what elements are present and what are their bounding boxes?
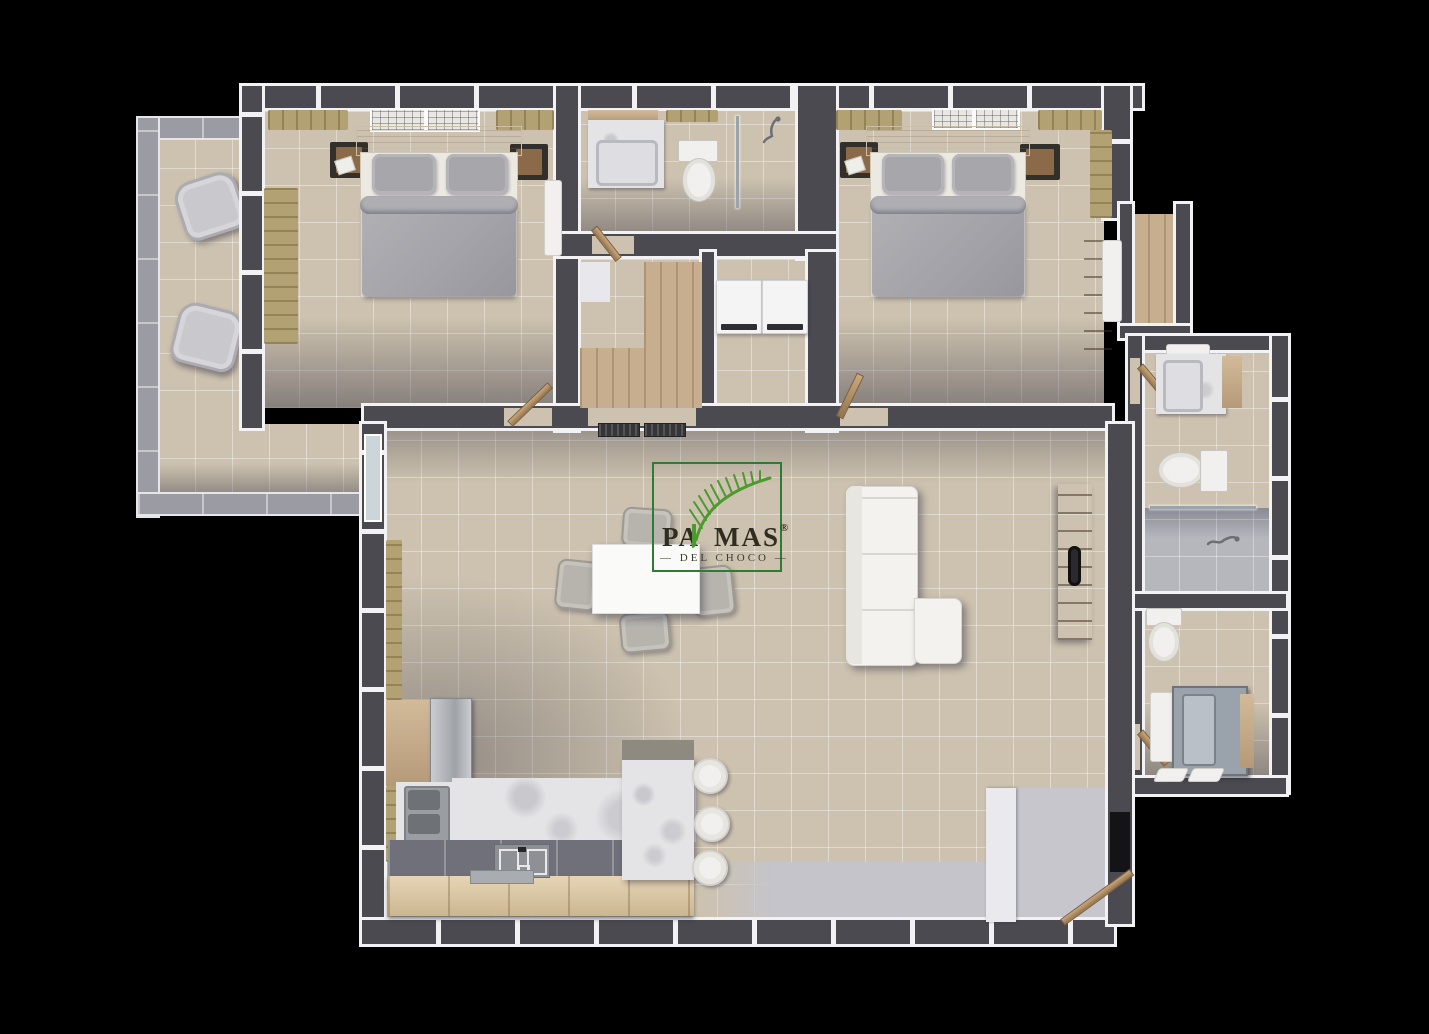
washer [716,280,762,334]
floor-mat [644,423,686,437]
duvet-fold [870,196,1026,214]
brand-name: PAMAS® [662,522,790,553]
balcony-rail-left [138,118,158,516]
floor-mat [598,423,640,437]
sink-basin [596,140,658,186]
wall-ac-unit [1102,240,1122,322]
registered-mark: ® [780,522,790,534]
sink-basin [408,790,440,810]
window-curtain [268,110,348,130]
entry-partition-wall [986,788,1016,922]
small-closet-floor [1132,214,1176,328]
toilet-bowl [1158,452,1204,488]
bar-stool [694,806,730,842]
balcony-rail-bottom [138,494,370,514]
leaf-stem [692,524,696,548]
kitchen-island [622,758,694,880]
shower-glass [736,116,739,208]
toilet [1200,450,1228,492]
shower-head-icon [758,116,784,150]
kitchen-counter-front [388,876,694,916]
balcony-glass-door [364,434,382,522]
shower-frame [1240,694,1254,768]
wall-bath-bed2 [798,86,836,258]
floor-plan: PAMAS® — DEL CHOCO — [0,0,1429,1034]
kitchen-island-end [622,740,694,760]
wall-closet-laundry [702,252,714,428]
bath-mat [1187,768,1225,782]
bar-stool [692,850,728,886]
wall-ac-unit [544,180,562,256]
shower-cabin-door [1182,694,1216,766]
ensuite-door-opening [1130,358,1140,404]
balcony-floor-lower [158,424,370,496]
window-curtain [1038,110,1102,130]
bed-duvet [362,202,516,296]
towel-shelf [666,110,718,122]
shower-head-icon [1206,526,1240,552]
wall-wing-mid [1128,594,1286,608]
stove-vent [470,870,534,884]
pillow [372,154,436,194]
sofa-chaise [914,598,962,664]
entry-door-opening [1110,812,1130,872]
bed-duvet [872,202,1024,296]
wall-wing-right [1272,336,1288,792]
wall-small-closet-right [1176,204,1190,338]
wall-top-outer [242,86,1142,108]
shower-glass [1150,506,1256,509]
window-curtain-side [1090,130,1112,218]
wall-left-outer [242,86,262,428]
pillow [446,154,508,194]
pillow [952,154,1014,194]
closet-corner-wall [580,262,610,302]
sink-basin [1163,360,1203,412]
closet-wood-platform [580,348,702,408]
toilet-bowl [682,158,716,202]
wall-bed1-hall [556,86,578,430]
fridge-cabinet [386,700,434,786]
sink-basin [408,814,440,834]
wall-living-bottom [362,920,1114,944]
toilet-bowl [1148,622,1180,662]
bath-mat [1153,768,1189,782]
dryer [762,280,808,334]
vanity-shelf [1222,356,1242,408]
pillow [882,154,944,194]
fridge [430,698,472,788]
duvet-fold [360,196,518,214]
bar-stool [692,758,728,794]
dining-chair [618,610,671,654]
wall-laundry-bed2 [808,252,836,430]
wall-topblock-bottom [364,406,1112,428]
window-curtain-side [386,540,402,700]
wardrobe [264,188,298,344]
sofa-backrest [846,486,862,664]
brand-subtitle: — DEL CHOCO — [660,552,789,564]
brand-logo: PAMAS® — DEL CHOCO — [652,462,782,572]
tv [1068,546,1081,586]
